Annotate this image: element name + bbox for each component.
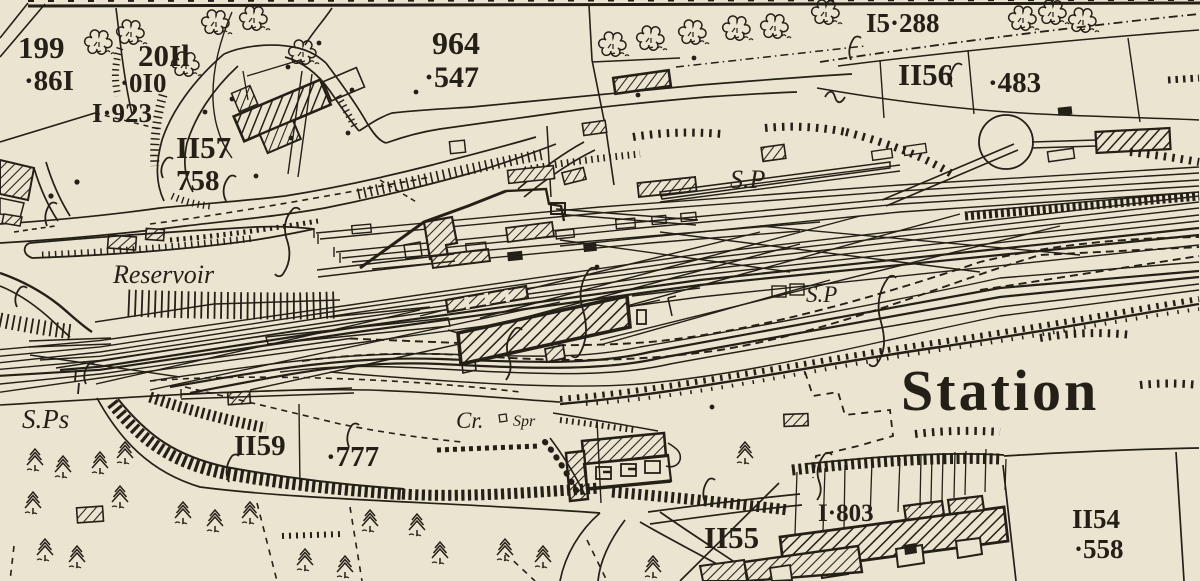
svg-text:II56: II56 (898, 57, 953, 92)
svg-text:S.Ps: S.Ps (22, 404, 69, 434)
svg-text:758: 758 (176, 165, 220, 197)
svg-text:I5·288: I5·288 (866, 8, 940, 38)
svg-text:199: 199 (18, 30, 65, 65)
svg-text:S.P: S.P (730, 165, 766, 194)
svg-text:Station: Station (901, 358, 1099, 423)
svg-text:II59: II59 (234, 430, 286, 462)
svg-text:II54: II54 (1072, 504, 1120, 534)
svg-text:·777: ·777 (326, 441, 379, 473)
svg-text:·547: ·547 (424, 61, 479, 94)
svg-text:Spr: Spr (513, 413, 536, 430)
svg-text:S.P: S.P (806, 282, 837, 307)
svg-text:I·803: I·803 (818, 500, 874, 527)
svg-text:II55: II55 (704, 520, 759, 555)
svg-text:I·923: I·923 (92, 98, 152, 128)
svg-text:964: 964 (432, 25, 480, 61)
svg-text:·86I: ·86I (24, 65, 74, 97)
svg-text:·0I0: ·0I0 (120, 68, 167, 98)
svg-text:·483: ·483 (988, 67, 1041, 99)
svg-text:Cr.: Cr. (456, 408, 484, 433)
svg-text:Reservoir: Reservoir (112, 260, 215, 289)
svg-text:·558: ·558 (1074, 534, 1124, 564)
svg-text:II57: II57 (176, 130, 231, 165)
